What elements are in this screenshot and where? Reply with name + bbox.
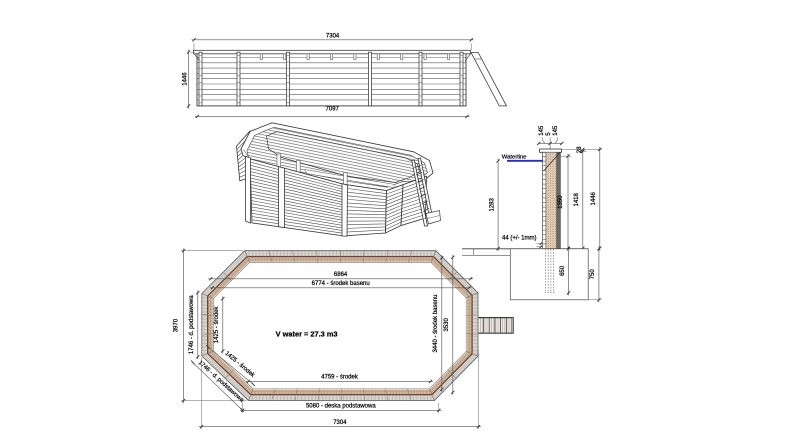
svg-text:6864: 6864 (334, 272, 348, 278)
svg-text:750: 750 (590, 269, 596, 280)
svg-text:1746 - d. podstawowa: 1746 - d. podstawowa (189, 295, 195, 354)
svg-text:1446: 1446 (591, 191, 597, 205)
svg-text:6774 - środek basenu: 6774 - środek basenu (312, 281, 370, 287)
svg-text:650: 650 (560, 265, 566, 276)
svg-text:145: 145 (539, 125, 545, 136)
svg-text:1425 - środek: 1425 - środek (214, 305, 220, 343)
svg-text:7097: 7097 (326, 107, 340, 113)
svg-text:44 (+/- 1mm): 44 (+/- 1mm) (502, 236, 537, 242)
svg-text:7304: 7304 (326, 34, 340, 40)
svg-text:7304: 7304 (333, 420, 347, 426)
svg-text:V water = 27.3 m3: V water = 27.3 m3 (276, 330, 338, 339)
svg-text:4759 - środek: 4759 - środek (321, 375, 359, 381)
svg-text:1350: 1350 (558, 195, 564, 209)
svg-text:1283: 1283 (489, 197, 495, 211)
svg-text:3440 - środek basenu: 3440 - środek basenu (433, 294, 439, 352)
svg-text:Waterline: Waterline (502, 154, 527, 160)
svg-text:1418: 1418 (574, 192, 580, 206)
svg-text:5080 - deska podstawowa: 5080 - deska podstawowa (306, 404, 376, 410)
svg-text:3970: 3970 (173, 318, 179, 332)
svg-text:1446: 1446 (182, 72, 188, 86)
svg-text:145: 145 (553, 125, 559, 136)
svg-text:3530: 3530 (444, 317, 450, 331)
